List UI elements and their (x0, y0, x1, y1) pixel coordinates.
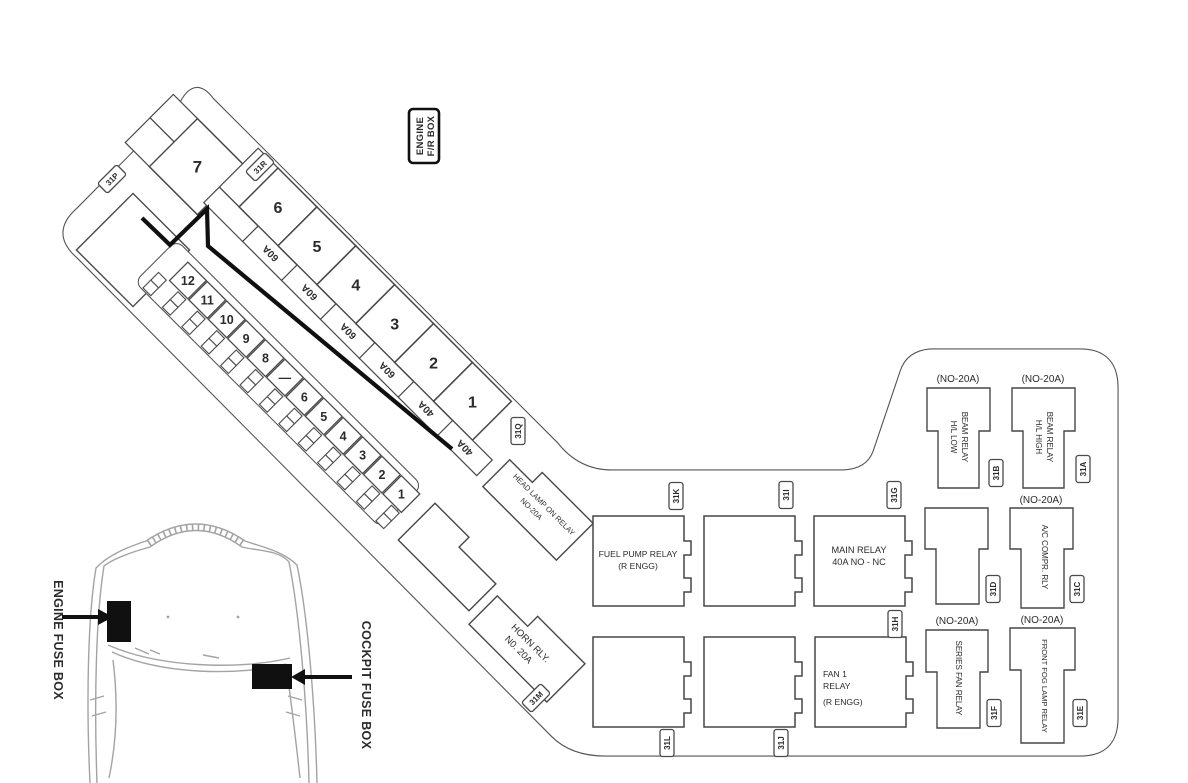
cockpit-fuse-box-rect (252, 664, 292, 689)
small-fuse-number-6: 6 (301, 390, 308, 404)
connector-label-31K: 31K (672, 488, 681, 503)
fuse-number-3: 3 (390, 317, 399, 334)
main-relay-sub: 40A NO - NC (832, 557, 886, 567)
connector-label-31B: 31B (992, 465, 1001, 480)
small-fuse-number-3: 3 (359, 449, 366, 463)
ac-compressor-amp: (NO-20A) (1020, 495, 1063, 506)
connector-31D: 31D (986, 576, 1000, 603)
car-body-right-outer (245, 541, 317, 783)
small-fuse-number-10: 10 (220, 313, 234, 327)
title-box: ENGINE F/R BOX (409, 109, 439, 163)
connector-label-31G: 31G (890, 487, 899, 502)
small-fuse-number-12: 12 (181, 274, 195, 288)
series-fan-amp: (NO-20A) (936, 616, 979, 627)
connector-31I: 31I (779, 482, 793, 509)
fan1-relay-sub: (R ENGG) (823, 697, 863, 707)
connector-31A: 31A (1076, 456, 1090, 483)
engine-fuse-box-rect (107, 601, 131, 642)
small-fuse-number-—: — (279, 371, 292, 385)
car-sill-detail (90, 696, 302, 716)
connector-31B: 31B (989, 460, 1003, 487)
car-hood-dot-right (237, 616, 240, 619)
small-fuse-number-9: 9 (243, 332, 250, 346)
front-fog-label: FRONT FOG LAMP RELAY (1040, 639, 1049, 733)
cockpit-fuse-box-label: COCKPIT FUSE BOX (359, 621, 373, 750)
fuse-7-number: 7 (193, 158, 202, 177)
engine-fuse-box-label: ENGINE FUSE BOX (51, 580, 65, 700)
hl-low-beam-label2: BEAM RELAY (960, 412, 969, 463)
car-body-left-inner (96, 547, 150, 783)
fuel-pump-relay-label: FUEL PUMP RELAY (599, 549, 678, 559)
engine-fuse-box-diagram: 7 660A560A460A360A240A140A 12111098—6543… (0, 0, 1188, 783)
relay-grid-box (704, 637, 802, 727)
connector-label-31I: 31I (782, 489, 791, 500)
connector-31J: 31J (774, 730, 788, 757)
relay-grid-box (704, 516, 802, 606)
hl-high-beam-amp: (NO-20A) (1022, 374, 1065, 385)
connector-label-31L: 31L (663, 736, 672, 750)
relay-grid-box (593, 637, 691, 727)
main-relay-label: MAIN RELAY (832, 545, 887, 555)
fuse-number-6: 6 (274, 200, 283, 217)
connector-label-31Q: 31Q (514, 423, 523, 438)
connector-label-31A: 31A (1079, 461, 1088, 476)
connector-31L: 31L (660, 730, 674, 757)
connector-31E: 31E (1073, 700, 1087, 727)
fuse-box-diagram-page: 7 660A560A460A360A240A140A 12111098—6543… (0, 0, 1188, 783)
fan1-relay-label2: RELAY (823, 681, 851, 691)
small-fuse-number-4: 4 (340, 429, 347, 443)
hl-low-beam-label1: H/L LOW (949, 421, 958, 454)
connector-label-31J: 31J (777, 736, 786, 749)
connector-31Q: 31Q (511, 418, 525, 445)
small-fuse-number-11: 11 (201, 293, 214, 307)
car-inset (88, 524, 317, 783)
small-fuse-number-5: 5 (320, 410, 327, 424)
engine-fuse-box-marker: ENGINE FUSE BOX (51, 580, 131, 700)
series-fan-label: SERIES FAN RELAY (954, 641, 963, 717)
fuse-number-2: 2 (429, 355, 438, 372)
small-fuse-number-2: 2 (379, 468, 386, 482)
fuel-pump-relay-sub: (R ENGG) (618, 561, 658, 571)
fuse-number-5: 5 (312, 239, 321, 256)
fuse-number-1: 1 (468, 394, 477, 411)
title-line1: ENGINE (415, 117, 426, 155)
front-fog-amp: (NO-20A) (1021, 615, 1064, 626)
connector-31H: 31H (888, 611, 902, 638)
hl-high-beam-label1: H/L HIGH (1034, 420, 1043, 455)
connector-label-31F: 31F (990, 706, 999, 720)
fan1-relay-label: FAN 1 (823, 669, 847, 679)
connector-31F: 31F (987, 700, 1001, 727)
car-inner-left (109, 660, 116, 778)
small-fuse-number-1: 1 (398, 488, 405, 502)
connector-label-31H: 31H (891, 616, 900, 631)
ac-compressor-label: A/C COMPR. RLY (1040, 525, 1049, 590)
fuse-number-4: 4 (351, 278, 360, 295)
small-fuse-number-8: 8 (262, 352, 269, 366)
cockpit-arrow-head (291, 669, 305, 685)
connector-label-31E: 31E (1076, 705, 1085, 720)
connector-label-31D: 31D (989, 581, 998, 596)
connector-31C: 31C (1070, 576, 1084, 603)
connector-label-31C: 31C (1073, 581, 1082, 596)
title-line2: F/R BOX (426, 115, 437, 156)
connector-31G: 31G (887, 482, 901, 509)
hl-high-beam-label2: BEAM RELAY (1045, 412, 1054, 463)
hl-low-beam-amp: (NO-20A) (937, 374, 980, 385)
connector-31K: 31K (669, 483, 683, 510)
car-hood-dot-left (167, 616, 170, 619)
car-wiper-detail (135, 648, 219, 658)
